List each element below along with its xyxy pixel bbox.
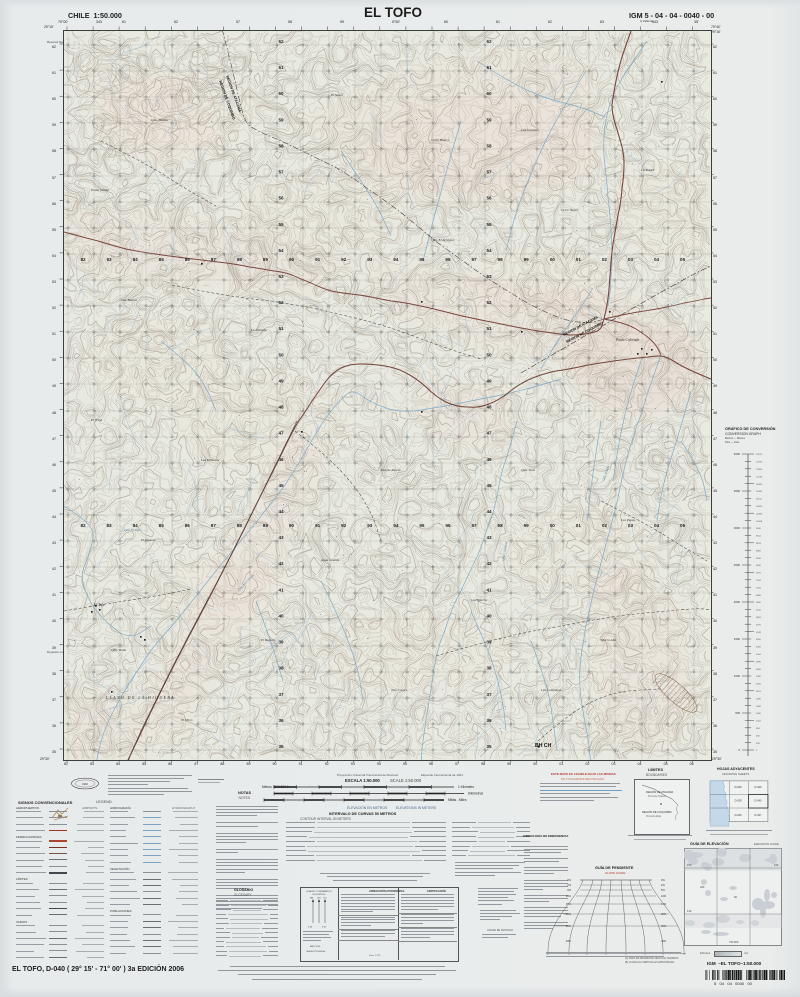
- svg-text:0°51': 0°51': [322, 927, 327, 929]
- svg-text:La Polvada: La Polvada: [250, 328, 267, 332]
- svg-text:53: 53: [278, 274, 284, 279]
- svg-text:D-039: D-039: [735, 800, 742, 803]
- svg-text:Qda. Verde: Qda. Verde: [111, 648, 127, 652]
- svg-text:El Chanar: El Chanar: [140, 538, 156, 542]
- svg-text:10%: 10%: [566, 894, 572, 898]
- svg-text:LLANO DE LA HIGUERA: LLANO DE LA HIGUERA: [105, 696, 175, 700]
- svg-text:85: 85: [159, 523, 165, 528]
- svg-text:55: 55: [486, 222, 492, 227]
- svg-text:9512: 9512: [756, 536, 762, 538]
- svg-text:Tres Cruces: Tres Cruces: [391, 688, 408, 692]
- svg-text:46: 46: [486, 457, 492, 462]
- svg-text:36: 36: [486, 718, 492, 723]
- svg-text:46: 46: [278, 457, 284, 462]
- svg-text:7216: 7216: [756, 587, 762, 589]
- svg-text:D-047: D-047: [755, 814, 762, 817]
- svg-text:Agua Grande: Agua Grande: [320, 558, 340, 562]
- svg-text:2624: 2624: [756, 691, 762, 693]
- svg-text:05: 05: [680, 523, 686, 528]
- svg-text:90: 90: [289, 523, 295, 528]
- svg-text:8200: 8200: [756, 565, 762, 567]
- svg-text:8528: 8528: [756, 558, 762, 560]
- svg-text:5576: 5576: [756, 624, 762, 626]
- svg-text:1 Kilómetro: 1 Kilómetro: [458, 785, 474, 789]
- svg-text:99: 99: [524, 257, 530, 262]
- svg-text:2500: 2500: [734, 563, 741, 567]
- svg-text:La Higuera: La Higuera: [470, 598, 487, 602]
- svg-text:656: 656: [756, 735, 760, 737]
- svg-text:Qda. El Arrayan: Qda. El Arrayan: [431, 238, 454, 242]
- svg-text:CUADRO COMPARATIVO: CUADRO COMPARATIVO: [306, 890, 332, 893]
- svg-text:52: 52: [486, 300, 492, 305]
- svg-text:Qda. Seca: Qda. Seca: [521, 468, 535, 472]
- svg-text:BH CH: BH CH: [535, 743, 552, 749]
- svg-text:El Romero: El Romero: [260, 638, 276, 642]
- svg-text:El Sauce: El Sauce: [330, 93, 343, 97]
- svg-text:49: 49: [486, 378, 492, 383]
- svg-text:89: 89: [263, 523, 269, 528]
- svg-text:984: 984: [756, 728, 760, 730]
- svg-text:45: 45: [278, 483, 284, 488]
- svg-text:3500: 3500: [734, 489, 741, 493]
- svg-text:Provincia Elqui: Provincia Elqui: [646, 815, 662, 818]
- svg-text:52: 52: [278, 300, 284, 305]
- svg-text:2952: 2952: [756, 684, 762, 686]
- svg-text:59: 59: [486, 117, 492, 122]
- svg-text:9184: 9184: [756, 543, 762, 545]
- svg-text:2%: 2%: [661, 883, 665, 887]
- svg-text:86: 86: [185, 257, 191, 262]
- svg-text:10824: 10824: [756, 506, 763, 508]
- svg-text:48: 48: [486, 405, 492, 410]
- svg-text:56: 56: [278, 196, 284, 201]
- svg-text:03: 03: [628, 257, 634, 262]
- svg-text:3280: 3280: [756, 676, 762, 678]
- svg-text:Cerro Negro: Cerro Negro: [561, 208, 578, 212]
- svg-text:96: 96: [445, 257, 451, 262]
- svg-text:0%: 0%: [567, 878, 571, 882]
- svg-text:El Tofo: El Tofo: [93, 603, 105, 607]
- svg-text:50: 50: [486, 352, 492, 357]
- svg-text:92: 92: [341, 523, 347, 528]
- svg-text:11808: 11808: [756, 484, 763, 486]
- svg-text:Punta Colorada: Punta Colorada: [615, 338, 639, 342]
- svg-text:85: 85: [159, 257, 165, 262]
- svg-text:12136: 12136: [756, 476, 763, 478]
- svg-text:82: 82: [80, 523, 86, 528]
- svg-text:3608: 3608: [756, 669, 762, 671]
- svg-text:43: 43: [486, 535, 492, 540]
- svg-text:3936: 3936: [756, 661, 762, 663]
- svg-text:96: 96: [445, 523, 451, 528]
- svg-text:97: 97: [471, 257, 477, 262]
- svg-text:NM: NM: [310, 898, 313, 900]
- svg-text:Pan de Azucar: Pan de Azucar: [380, 468, 402, 472]
- svg-text:IGM: IGM: [82, 782, 88, 786]
- svg-text:10496: 10496: [756, 513, 763, 515]
- svg-text:4592: 4592: [756, 647, 762, 649]
- svg-text:39: 39: [278, 640, 284, 645]
- svg-text:87: 87: [211, 523, 217, 528]
- svg-text:Provincia Huasco: Provincia Huasco: [648, 795, 667, 798]
- svg-text:0%: 0%: [661, 878, 665, 882]
- svg-text:37: 37: [278, 692, 284, 697]
- svg-text:38: 38: [278, 666, 284, 671]
- svg-text:42: 42: [486, 561, 492, 566]
- svg-text:1312: 1312: [756, 721, 762, 723]
- svg-text:4920: 4920: [756, 639, 762, 641]
- svg-text:12792: 12792: [756, 462, 763, 464]
- svg-text:2°30': 2°30': [308, 927, 313, 929]
- svg-text:11480: 11480: [756, 491, 763, 493]
- svg-text:40%: 40%: [566, 939, 572, 943]
- svg-text:Los Pozos: Los Pozos: [620, 518, 636, 522]
- svg-text:El Trigo: El Trigo: [90, 418, 103, 422]
- svg-text:40: 40: [278, 613, 284, 618]
- svg-text:6560: 6560: [756, 602, 762, 604]
- svg-text:160: 160: [774, 863, 779, 867]
- svg-text:11152: 11152: [756, 499, 763, 501]
- svg-text:328: 328: [756, 743, 760, 745]
- svg-text:10%: 10%: [661, 894, 667, 898]
- svg-text:50: 50: [278, 352, 284, 357]
- svg-text:REGIÓN DE ATACAMA: REGIÓN DE ATACAMA: [646, 789, 674, 794]
- svg-text:2296: 2296: [756, 698, 762, 700]
- svg-text:6232: 6232: [756, 610, 762, 612]
- svg-text:45: 45: [486, 483, 492, 488]
- svg-text:44: 44: [278, 509, 284, 514]
- svg-text:12464: 12464: [756, 469, 763, 471]
- svg-text:5248: 5248: [756, 632, 762, 634]
- svg-text:Punta Gorda: Punta Gorda: [90, 188, 109, 192]
- svg-text:El Olivo: El Olivo: [180, 718, 193, 722]
- svg-text:93: 93: [367, 523, 373, 528]
- svg-text:54: 54: [486, 248, 492, 253]
- svg-text:10168: 10168: [756, 521, 763, 523]
- svg-text:97: 97: [471, 523, 477, 528]
- svg-text:Kilómetros: Kilómetros: [468, 792, 483, 796]
- svg-text:4000: 4000: [734, 452, 741, 456]
- svg-text:15%: 15%: [566, 902, 572, 906]
- svg-text:49: 49: [278, 378, 284, 383]
- svg-text:Los Corrales: Los Corrales: [520, 128, 539, 132]
- svg-text:Las Mollacas: Las Mollacas: [200, 458, 220, 462]
- svg-text:01: 01: [576, 523, 582, 528]
- svg-text:30%: 30%: [661, 924, 667, 928]
- svg-text:42: 42: [278, 561, 284, 566]
- svg-text:02: 02: [602, 257, 608, 262]
- svg-text:60: 60: [278, 91, 284, 96]
- svg-text:47: 47: [278, 431, 284, 436]
- svg-text:5904: 5904: [756, 617, 762, 619]
- svg-text:57: 57: [278, 170, 284, 175]
- svg-text:57: 57: [486, 170, 492, 175]
- svg-text:140: 140: [687, 909, 692, 913]
- svg-text:D-046: D-046: [735, 814, 742, 817]
- svg-text:20%: 20%: [661, 912, 667, 916]
- svg-text:58: 58: [278, 143, 284, 148]
- svg-text:61: 61: [486, 65, 492, 70]
- svg-text:87: 87: [211, 257, 217, 262]
- svg-text:53: 53: [486, 274, 492, 279]
- svg-text:40%: 40%: [661, 939, 667, 943]
- svg-text:D-040: D-040: [755, 800, 762, 803]
- svg-text:4264: 4264: [756, 654, 762, 656]
- svg-text:1640: 1640: [756, 713, 762, 715]
- svg-text:00: 00: [550, 523, 556, 528]
- svg-text:0: 0: [738, 748, 740, 752]
- svg-text:00: 00: [550, 257, 556, 262]
- svg-text:59: 59: [278, 117, 284, 122]
- svg-text:15%: 15%: [661, 902, 667, 906]
- svg-text:7544: 7544: [756, 580, 762, 582]
- svg-text:94: 94: [393, 257, 399, 262]
- svg-text:91: 91: [315, 523, 321, 528]
- svg-text:Morro Alto: Morro Alto: [600, 638, 616, 642]
- svg-text:60: 60: [486, 91, 492, 96]
- svg-text:51: 51: [278, 326, 284, 331]
- svg-text:35: 35: [278, 744, 284, 749]
- svg-text:54: 54: [278, 248, 284, 253]
- svg-text:04: 04: [654, 523, 660, 528]
- svg-text:La Totora: La Totora: [640, 168, 655, 172]
- svg-text:500: 500: [735, 711, 740, 715]
- svg-text:55: 55: [278, 222, 284, 227]
- svg-text:5%: 5%: [661, 888, 665, 892]
- svg-text:NG: NG: [318, 898, 321, 900]
- svg-text:Las Campanas: Las Campanas: [540, 688, 562, 692]
- svg-text:51: 51: [486, 326, 492, 331]
- svg-text:2%: 2%: [567, 883, 571, 887]
- svg-text:8856: 8856: [756, 550, 762, 552]
- svg-text:5%: 5%: [567, 888, 571, 892]
- svg-text:41: 41: [486, 587, 492, 592]
- svg-text:98: 98: [498, 257, 504, 262]
- svg-text:84: 84: [133, 257, 139, 262]
- svg-text:01: 01: [576, 257, 582, 262]
- svg-text:1968: 1968: [756, 706, 762, 708]
- svg-text:200: 200: [700, 885, 705, 889]
- svg-text:61: 61: [278, 65, 284, 70]
- svg-text:38: 38: [486, 666, 492, 671]
- svg-text:2000: 2000: [734, 600, 741, 604]
- svg-text:36: 36: [278, 718, 284, 723]
- svg-text:0: 0: [756, 750, 758, 752]
- svg-text:43: 43: [278, 535, 284, 540]
- svg-text:41: 41: [278, 587, 284, 592]
- svg-text:9840: 9840: [756, 528, 762, 530]
- svg-text:86: 86: [185, 523, 191, 528]
- svg-text:D-028: D-028: [735, 786, 742, 789]
- svg-text:82: 82: [80, 257, 86, 262]
- svg-text:93: 93: [367, 257, 373, 262]
- svg-text:Qda. El Tofo: Qda. El Tofo: [124, 528, 141, 532]
- svg-text:750 000: 750 000: [729, 940, 739, 944]
- svg-text:98: 98: [498, 523, 504, 528]
- svg-text:83: 83: [107, 523, 113, 528]
- svg-text:94: 94: [393, 523, 399, 528]
- svg-text:62: 62: [278, 39, 284, 44]
- svg-text:DE NORTES: DE NORTES: [313, 894, 326, 896]
- svg-text:39: 39: [486, 640, 492, 645]
- svg-text:Millas - Miles: Millas - Miles: [448, 798, 467, 802]
- svg-text:6888: 6888: [756, 595, 762, 597]
- svg-text:7872: 7872: [756, 573, 762, 575]
- svg-text:Qda. Honda: Qda. Honda: [151, 118, 168, 122]
- svg-text:13120: 13120: [756, 454, 763, 456]
- svg-text:56: 56: [486, 196, 492, 201]
- svg-text:04: 04: [654, 257, 660, 262]
- svg-text:REGIÓN DE COQUIMBO: REGIÓN DE COQUIMBO: [642, 809, 672, 814]
- svg-text:58: 58: [486, 143, 492, 148]
- svg-text:Cerro Blanco: Cerro Blanco: [431, 138, 450, 142]
- svg-text:62: 62: [486, 39, 492, 44]
- svg-text:88: 88: [237, 523, 243, 528]
- svg-text:48: 48: [278, 405, 284, 410]
- svg-text:47: 47: [486, 431, 492, 436]
- svg-text:91: 91: [315, 257, 321, 262]
- svg-text:89: 89: [263, 257, 269, 262]
- svg-text:NC: NC: [324, 898, 327, 900]
- svg-text:05: 05: [680, 257, 686, 262]
- svg-text:44: 44: [486, 509, 492, 514]
- svg-text:1500: 1500: [734, 637, 741, 641]
- svg-text:92: 92: [341, 257, 347, 262]
- svg-text:37: 37: [486, 692, 492, 697]
- svg-text:150: 150: [687, 863, 692, 867]
- svg-text:30%: 30%: [566, 924, 572, 928]
- svg-text:Cta. Blanca: Cta. Blanca: [121, 298, 138, 302]
- svg-text:D-029: D-029: [755, 786, 762, 789]
- svg-text:95: 95: [419, 257, 425, 262]
- svg-text:20%: 20%: [566, 912, 572, 916]
- svg-text:02: 02: [602, 523, 608, 528]
- svg-text:90: 90: [289, 257, 295, 262]
- svg-text:1000: 1000: [734, 674, 741, 678]
- svg-text:35: 35: [486, 744, 492, 749]
- svg-text:88: 88: [237, 257, 243, 262]
- svg-text:95: 95: [419, 523, 425, 528]
- svg-text:83: 83: [107, 257, 113, 262]
- svg-text:3000: 3000: [734, 526, 741, 530]
- svg-text:03: 03: [628, 523, 634, 528]
